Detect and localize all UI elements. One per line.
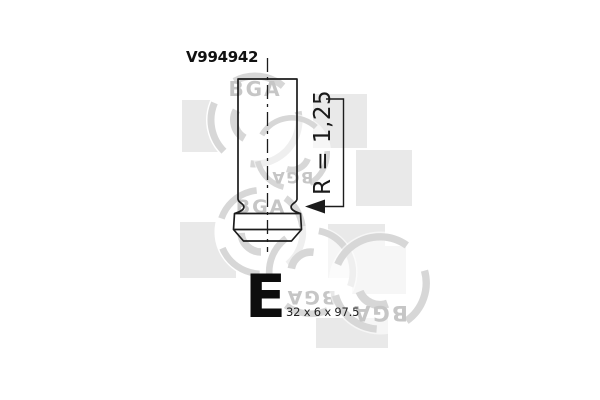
radius-arrow-icon [305, 200, 325, 214]
radius-label: R = 1,25 [310, 90, 336, 195]
valve-technical-drawing: R = 1,25 [0, 0, 600, 400]
valve-type-letter: E [245, 267, 286, 327]
part-number: V994942 [186, 49, 258, 65]
catalog-product-drawing: BGA BGA BGA BGA BGA [0, 0, 600, 400]
valve-dimensions: 32 x 6 x 97.5 [286, 306, 359, 318]
